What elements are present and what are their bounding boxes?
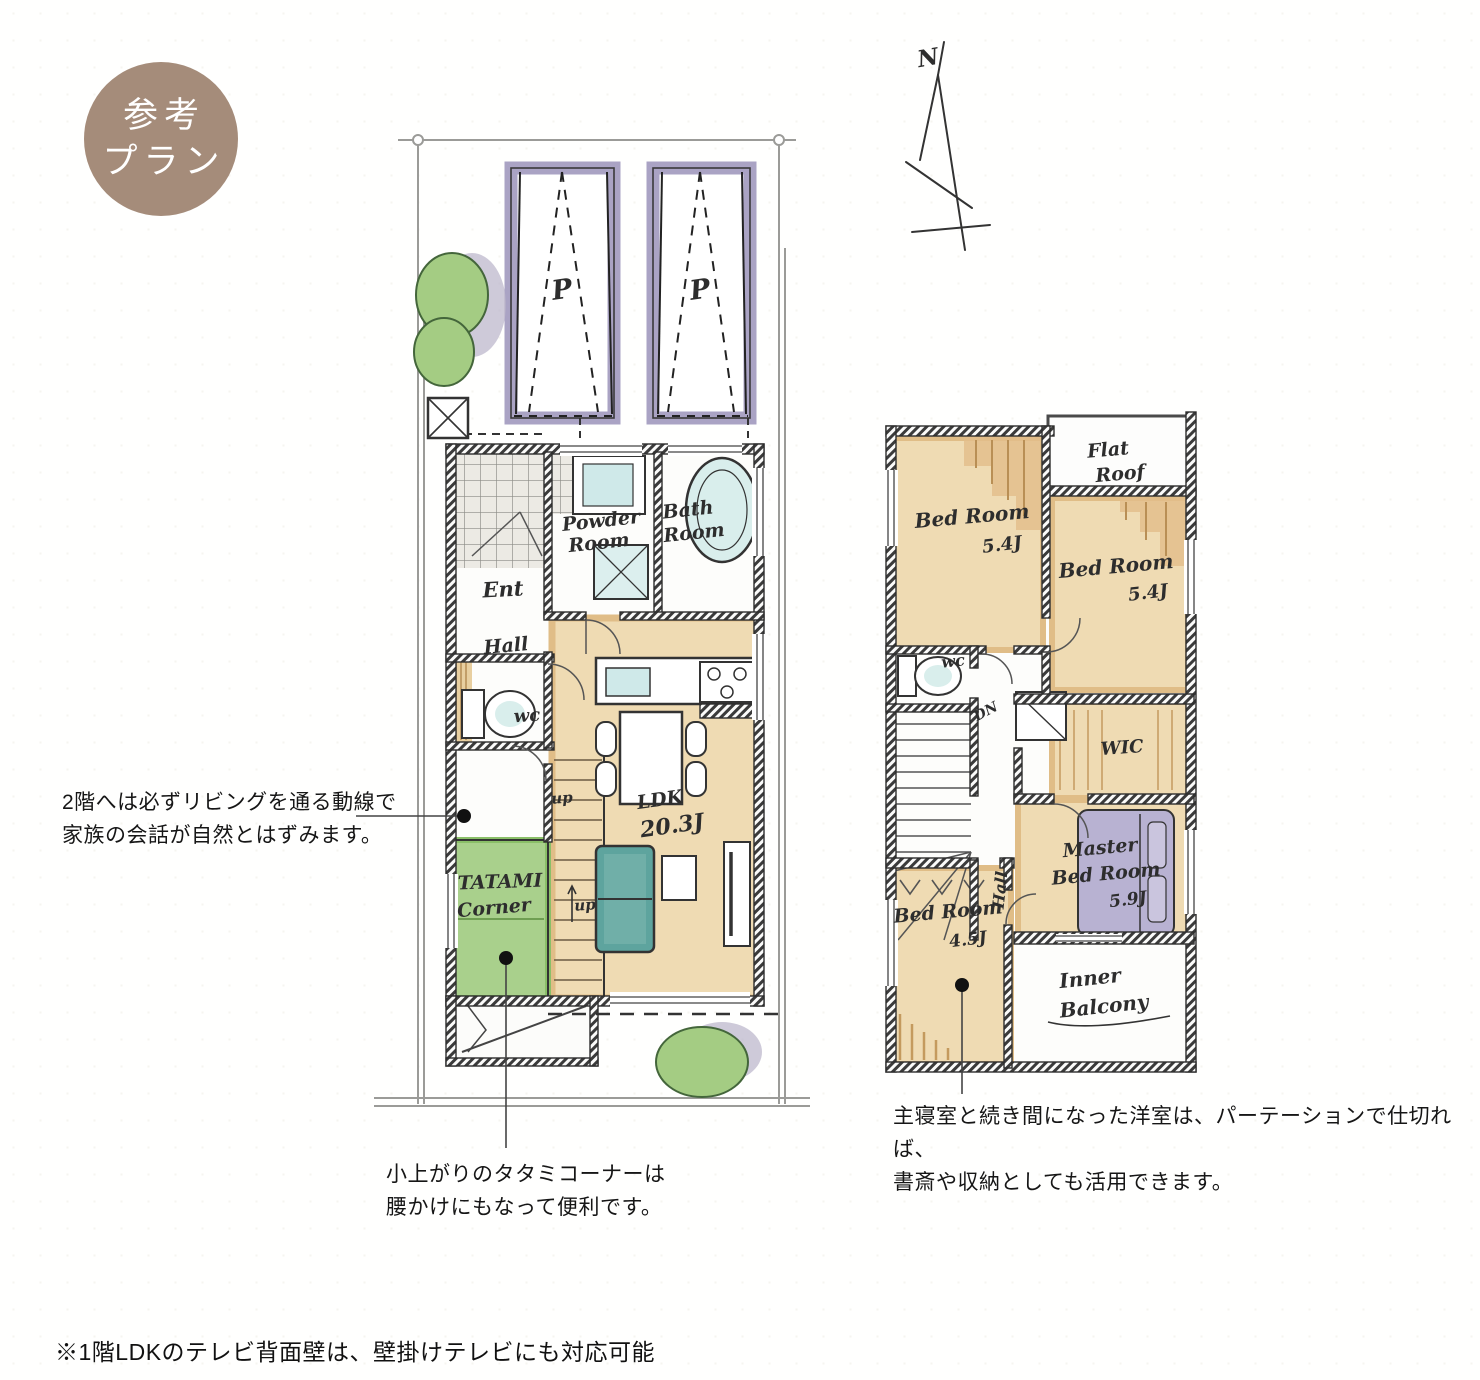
- toilet-tank: [898, 656, 916, 696]
- toilet-tank: [462, 690, 484, 738]
- parking1-label: P: [550, 273, 574, 307]
- annotation-master-bedroom: 主寝室と続き間になった洋室は、パーテーションで仕切れば、 書斎や収納としても活用…: [893, 1100, 1480, 1200]
- flat-roof-label-1: Flat: [1086, 437, 1130, 463]
- north-compass: [906, 42, 990, 250]
- annotation-living-flow-line2: 家族の会話が自然とはずみます。: [62, 819, 397, 852]
- annotation-tatami-corner: 小上がりのタタミコーナーは 腰かけにもなって便利です。: [386, 1158, 666, 1224]
- badge-line-1: 参考: [117, 93, 205, 139]
- annotation-living-flow: 2階へは必ずリビングを通る動線で 家族の会話が自然とはずみます。: [62, 786, 397, 852]
- annotation-tatami-line2: 腰かけにもなって便利です。: [386, 1191, 666, 1224]
- compass-north-label: N: [915, 43, 940, 73]
- tv-board: [724, 842, 750, 946]
- chair: [596, 722, 616, 756]
- wc-label: wc: [513, 705, 541, 728]
- chair: [596, 762, 616, 796]
- kitchen-sink: [606, 668, 650, 696]
- stove: [700, 662, 754, 702]
- chair: [686, 762, 706, 796]
- hall-label: Hall: [483, 633, 529, 659]
- footer-note: ※1階LDKのテレビ背面壁は、壁掛けテレビにも対応可能: [55, 1333, 655, 1367]
- flat-roof-label-2: Roof: [1094, 461, 1145, 487]
- annotation-tatami-line1: 小上がりのタタミコーナーは: [386, 1158, 666, 1191]
- garden-tree: [414, 253, 506, 438]
- floor-plan-page: 参考 プラン N P P Powder Room Bath Room Ent H…: [0, 0, 1480, 1380]
- side-table: [662, 856, 696, 900]
- entrance-label: Ent: [482, 575, 524, 602]
- parking2-label: P: [688, 273, 712, 307]
- stairs-up-label: up: [551, 788, 574, 807]
- pillow: [1148, 876, 1166, 922]
- chair: [686, 722, 706, 756]
- wc2-label: wc: [940, 650, 965, 671]
- tatami-up-label: up: [574, 895, 597, 914]
- reference-plan-badge: 参考 プラン: [84, 62, 238, 216]
- badge-line-2: プラン: [96, 139, 225, 185]
- tatami-corner-label-1: TATAMI: [457, 870, 542, 895]
- annotation-master-line1: 主寝室と続き間になった洋室は、パーテーションで仕切れば、: [893, 1100, 1480, 1166]
- annotation-living-flow-line1: 2階へは必ずリビングを通る動線で: [62, 786, 397, 819]
- wic-label: WIC: [1100, 736, 1144, 760]
- annotation-master-line2: 書斎や収納としても活用できます。: [893, 1166, 1480, 1199]
- garden-bush: [656, 1022, 762, 1097]
